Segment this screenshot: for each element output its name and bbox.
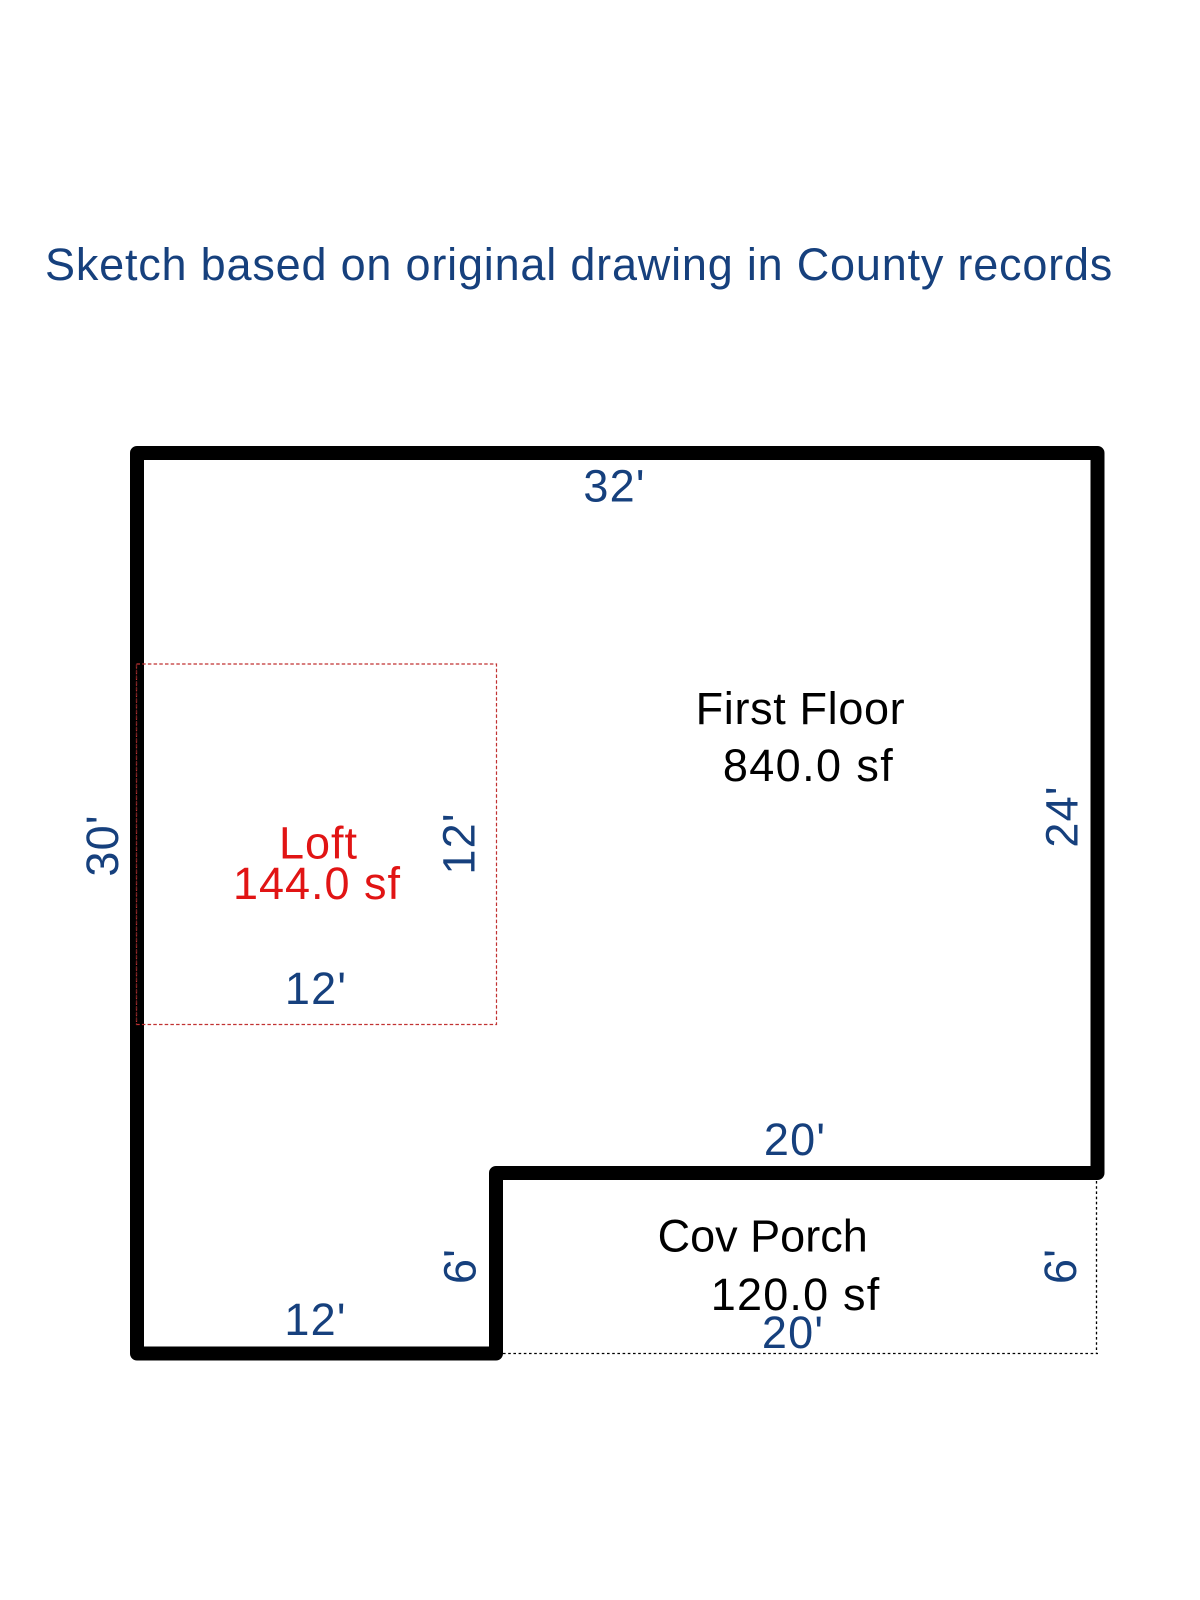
- svg-text:32': 32': [583, 461, 645, 512]
- svg-text:Cov Porch: Cov Porch: [658, 1211, 868, 1262]
- svg-text:20': 20': [764, 1114, 826, 1165]
- svg-text:12': 12': [434, 812, 485, 874]
- svg-text:24': 24': [1037, 785, 1088, 847]
- svg-text:30': 30': [77, 814, 128, 876]
- svg-text:12': 12': [285, 963, 347, 1014]
- svg-text:840.0 sf: 840.0 sf: [723, 740, 894, 791]
- svg-text:20': 20': [762, 1307, 824, 1358]
- svg-text:6': 6': [435, 1248, 486, 1284]
- svg-text:6': 6': [1035, 1248, 1086, 1284]
- svg-text:12': 12': [284, 1294, 346, 1345]
- svg-text:Sketch based on original drawi: Sketch based on original drawing in Coun…: [45, 239, 1113, 290]
- svg-text:144.0 sf: 144.0 sf: [233, 858, 401, 909]
- svg-text:First Floor: First Floor: [696, 683, 906, 734]
